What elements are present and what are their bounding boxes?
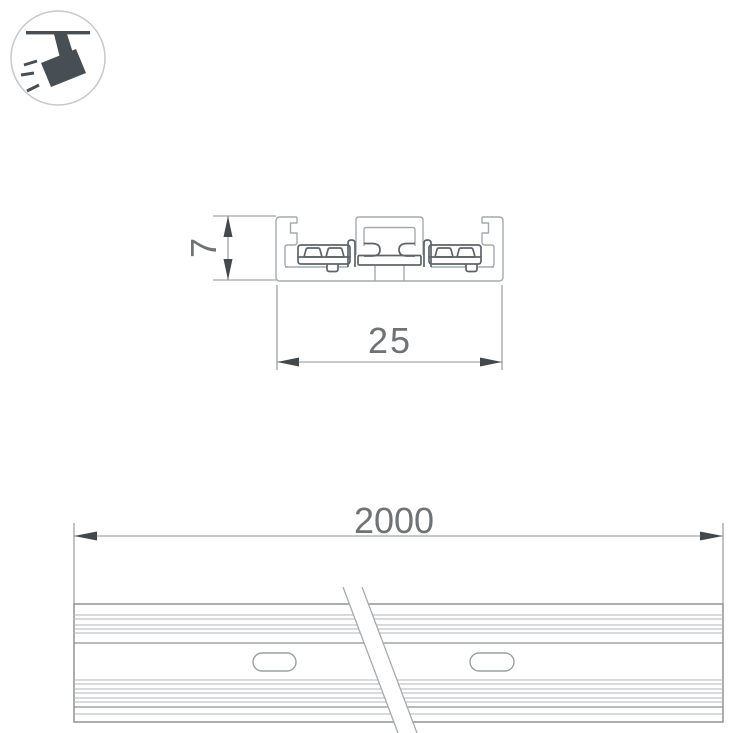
magnet-bar — [358, 256, 421, 266]
arrow-down — [224, 259, 233, 280]
length-dimension-label: 2000 — [354, 503, 434, 539]
contact-left-1 — [304, 248, 322, 257]
profile-drawing — [0, 0, 733, 733]
arrow-left — [74, 532, 97, 541]
rail-ribs-top — [74, 615, 723, 633]
center-finger-right — [399, 244, 415, 257]
contact-right-1 — [435, 248, 453, 257]
arrow-up — [224, 216, 233, 237]
length-view — [74, 587, 723, 733]
arrow-right — [480, 358, 502, 367]
height-dimension-label: 7 — [186, 238, 222, 258]
arrow-left — [277, 358, 299, 367]
mounting-slot-2 — [470, 653, 514, 671]
technical-drawing-page: 7 25 2000 — [0, 0, 733, 733]
contact-left-2 — [326, 248, 344, 257]
center-finger-left — [364, 244, 380, 257]
mounting-slot-1 — [253, 653, 296, 671]
arrow-right — [700, 532, 723, 541]
contact-right-2 — [457, 248, 475, 257]
right-block-foot — [466, 264, 477, 272]
left-block-foot — [327, 264, 338, 272]
width-dimension-label: 25 — [368, 323, 412, 359]
break-band — [343, 587, 417, 733]
